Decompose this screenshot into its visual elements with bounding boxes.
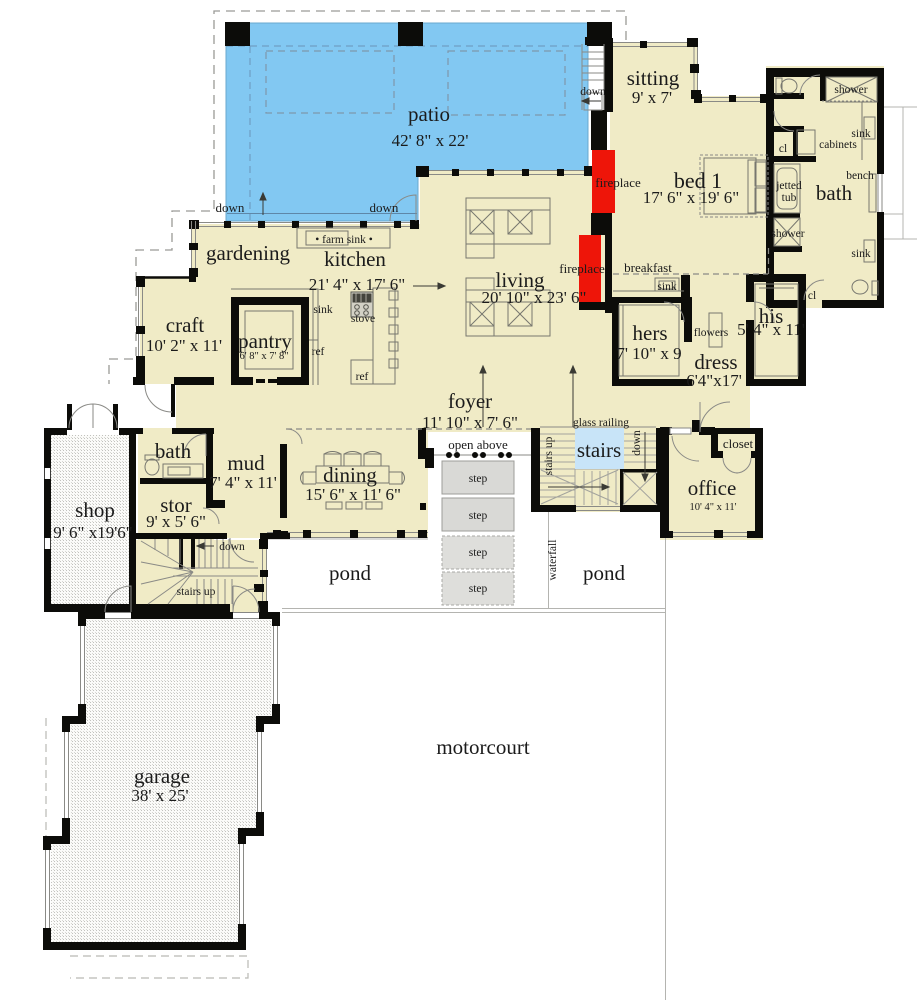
svg-text:• farm sink •: • farm sink • (315, 234, 373, 246)
svg-text:stairs up: stairs up (543, 436, 555, 475)
svg-text:20' 10" x 23' 6": 20' 10" x 23' 6" (481, 288, 586, 307)
svg-text:42' 8" x 22': 42' 8" x 22' (392, 131, 469, 150)
svg-text:gardening: gardening (206, 241, 290, 265)
svg-text:ref: ref (356, 371, 369, 383)
svg-text:cabinets: cabinets (819, 139, 857, 151)
svg-text:21' 4" x 17' 6": 21' 4" x 17' 6" (309, 275, 406, 294)
svg-text:17' 6" x 19' 6": 17' 6" x 19' 6" (643, 188, 740, 207)
svg-text:cl: cl (779, 143, 787, 155)
svg-text:step: step (469, 473, 488, 485)
svg-text:pond: pond (329, 561, 372, 585)
svg-text:flowers: flowers (694, 327, 729, 339)
svg-text:down: down (370, 200, 399, 215)
svg-text:15' 6" x 11' 6": 15' 6" x 11' 6" (305, 485, 401, 504)
svg-text:9' 6" x19'6": 9' 6" x19'6" (53, 523, 133, 542)
svg-text:foyer: foyer (448, 389, 492, 413)
svg-text:sink: sink (851, 248, 870, 260)
svg-text:craft: craft (166, 313, 205, 337)
svg-text:garage: garage (134, 764, 190, 788)
svg-text:38' x 25': 38' x 25' (131, 786, 188, 805)
svg-text:7' 4" x 11': 7' 4" x 11' (209, 473, 277, 492)
svg-text:sitting: sitting (627, 66, 680, 90)
svg-text:7' 10" x 9: 7' 10" x 9 (616, 344, 681, 363)
svg-text:9' x 5' 6": 9' x 5' 6" (146, 512, 206, 531)
svg-text:office: office (688, 476, 737, 500)
svg-text:kitchen: kitchen (324, 247, 386, 271)
svg-text:pond: pond (583, 561, 626, 585)
svg-text:shop: shop (75, 498, 115, 522)
svg-text:sink: sink (657, 281, 676, 293)
svg-text:fireplace: fireplace (559, 261, 605, 276)
svg-text:open above: open above (448, 437, 508, 452)
svg-text:breakfast: breakfast (624, 260, 672, 275)
svg-text:mud: mud (227, 451, 265, 475)
svg-text:shower: shower (834, 84, 867, 96)
svg-text:patio: patio (408, 102, 450, 126)
svg-text:ref: ref (312, 346, 325, 358)
svg-text:glass railing: glass railing (573, 417, 629, 429)
svg-text:stove: stove (351, 313, 375, 325)
svg-text:5' 4" x 11': 5' 4" x 11' (737, 320, 805, 339)
svg-text:closet: closet (723, 436, 754, 451)
svg-text:10' 2" x 11': 10' 2" x 11' (146, 336, 222, 355)
svg-text:pantry: pantry (238, 329, 292, 353)
svg-text:10' 4" x 11': 10' 4" x 11' (689, 502, 736, 513)
svg-text:6' 8" x 7' 8": 6' 8" x 7' 8" (239, 351, 288, 362)
svg-text:tub: tub (782, 192, 797, 204)
svg-text:bath: bath (816, 181, 853, 205)
svg-text:hers: hers (633, 321, 668, 345)
svg-text:step: step (469, 510, 488, 522)
svg-text:stairs up: stairs up (177, 586, 216, 598)
svg-text:step: step (469, 547, 488, 559)
svg-text:9' x 7': 9' x 7' (632, 88, 672, 107)
svg-text:bath: bath (155, 439, 192, 463)
svg-text:shower: shower (771, 228, 804, 240)
svg-text:stairs: stairs (577, 438, 621, 462)
svg-text:motorcourt: motorcourt (436, 735, 529, 759)
svg-text:fireplace: fireplace (595, 175, 641, 190)
svg-text:cl: cl (808, 290, 816, 302)
svg-text:step: step (469, 583, 488, 595)
svg-text:down: down (219, 541, 245, 553)
svg-text:jetted: jetted (775, 180, 802, 192)
svg-text:dining: dining (323, 463, 377, 487)
svg-text:6'4"x17': 6'4"x17' (686, 371, 742, 390)
svg-text:11' 10" x 7' 6": 11' 10" x 7' 6" (422, 413, 518, 432)
svg-text:down: down (216, 200, 245, 215)
svg-text:down: down (580, 86, 606, 98)
svg-text:down: down (631, 430, 643, 456)
svg-text:sink: sink (313, 304, 332, 316)
svg-text:waterfall: waterfall (547, 540, 559, 581)
